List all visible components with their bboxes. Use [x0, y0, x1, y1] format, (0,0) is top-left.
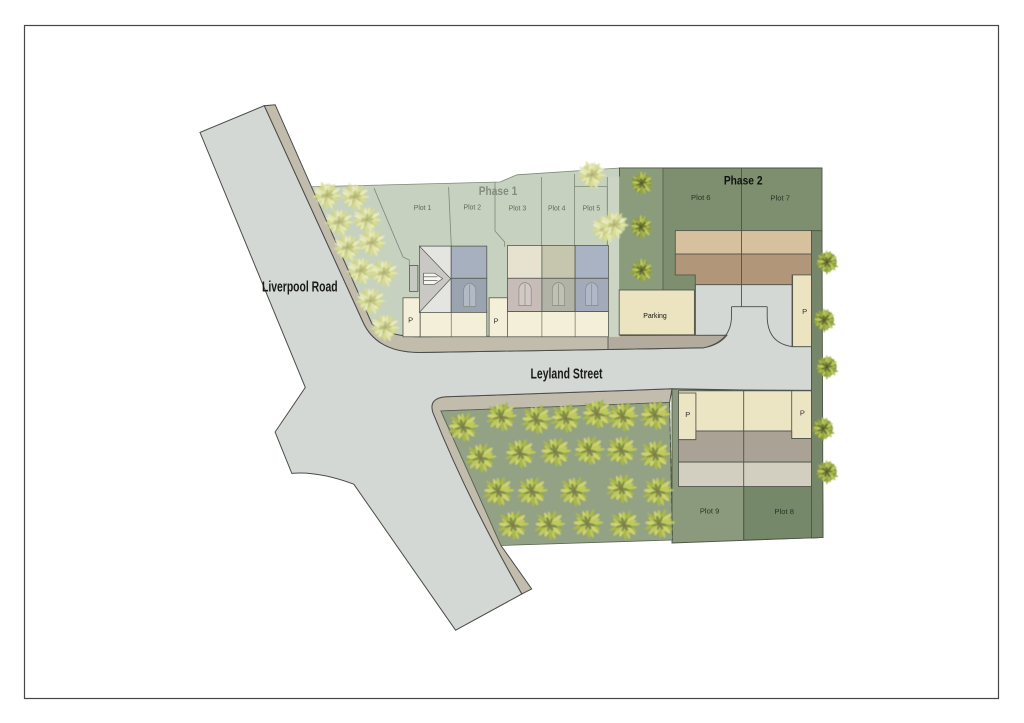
svg-text:Plot 1: Plot 1 — [414, 205, 432, 212]
svg-text:Plot 7: Plot 7 — [770, 196, 790, 203]
svg-text:Plot 5: Plot 5 — [583, 206, 601, 213]
svg-text:Plot 3: Plot 3 — [509, 206, 527, 213]
svg-text:P: P — [685, 410, 690, 419]
svg-text:Plot 8: Plot 8 — [774, 509, 794, 516]
svg-text:Liverpool Road: Liverpool Road — [262, 278, 338, 295]
svg-text:Phase 1: Phase 1 — [479, 186, 518, 198]
svg-text:Plot 6: Plot 6 — [691, 195, 711, 202]
svg-text:P: P — [408, 316, 413, 325]
svg-text:Parking: Parking — [643, 311, 667, 320]
svg-text:Plot 9: Plot 9 — [700, 509, 720, 516]
svg-text:P: P — [800, 408, 805, 417]
svg-text:P: P — [493, 316, 498, 325]
svg-text:Plot 4: Plot 4 — [548, 206, 566, 213]
svg-text:P: P — [802, 307, 807, 316]
svg-text:Leyland Street: Leyland Street — [531, 366, 603, 382]
svg-text:Plot 2: Plot 2 — [464, 205, 482, 212]
svg-text:Phase 2: Phase 2 — [724, 175, 763, 187]
